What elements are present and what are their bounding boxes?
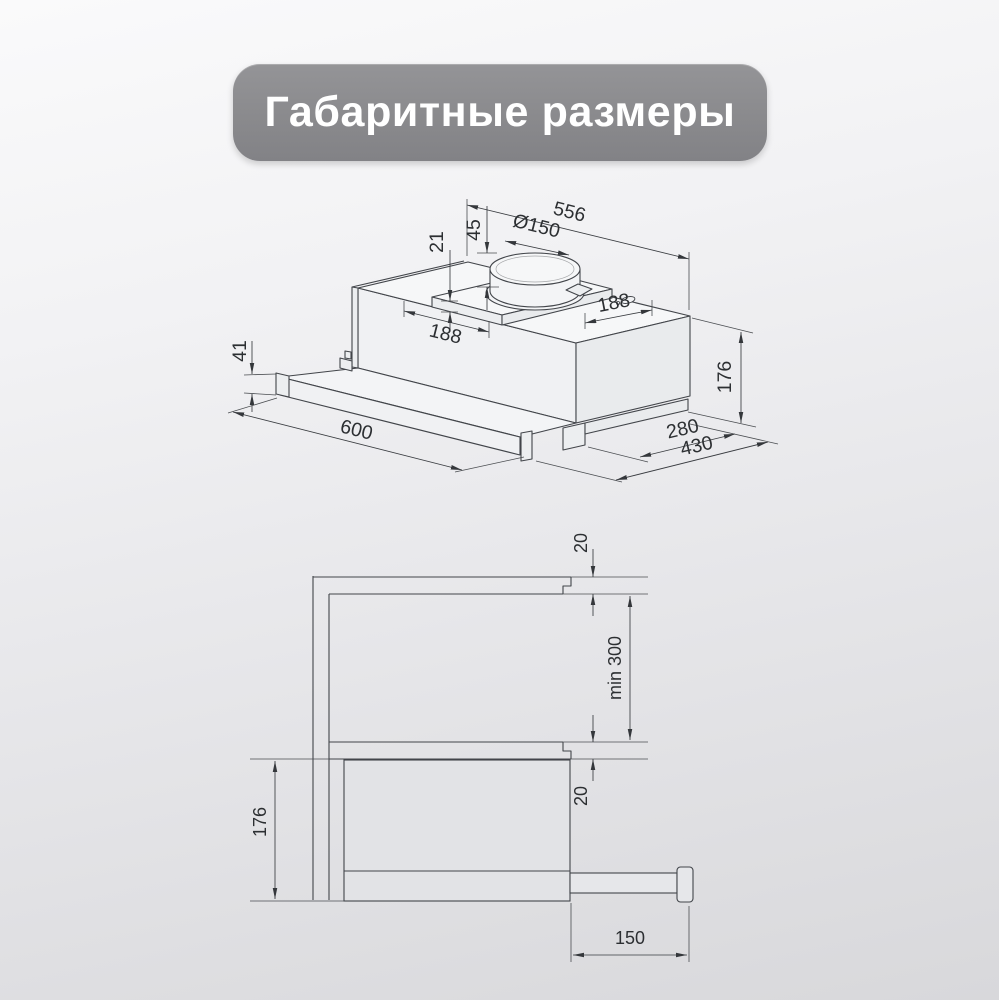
dim-plate-height-label: 21 (426, 231, 448, 253)
dim-duct-height-label: 45 (463, 219, 485, 241)
dim-top-panel-label: 20 (571, 533, 591, 553)
visor-handle (677, 867, 693, 902)
dim-visor-height-label: 41 (229, 340, 251, 362)
dim-body-height: 176 (688, 318, 756, 427)
mounting-bracket (340, 358, 352, 371)
dim-bottom-panel-label: 20 (571, 786, 591, 806)
slide-out-panel (570, 873, 677, 893)
mounting-bracket (345, 351, 351, 359)
dim-min-clearance-label: min 300 (605, 636, 625, 700)
page: { "title": "Габаритные размеры", "iso": … (0, 0, 999, 1000)
dim-visor-height: 41 (229, 340, 276, 412)
dim-bottom-panel: 20 (563, 715, 648, 806)
dim-body-height-label: 176 (714, 361, 736, 394)
iso-view: 556 Ø150 45 21 (228, 198, 778, 482)
duct-flange (486, 253, 592, 310)
dimensions-infographic: Габаритные размеры (0, 0, 999, 1000)
hood-side-profile (344, 760, 693, 902)
dim-hood-height: 176 (250, 759, 344, 901)
dim-top-panel: 20 (563, 533, 648, 616)
dim-min-clearance: min 300 (605, 596, 630, 740)
dim-extension-label: 150 (615, 928, 645, 948)
dim-extension: 150 (571, 903, 689, 962)
dim-hood-height-label: 176 (250, 807, 270, 837)
drawing-canvas: 556 Ø150 45 21 (0, 0, 999, 1000)
side-view: 20 min 300 20 176 (250, 533, 693, 962)
